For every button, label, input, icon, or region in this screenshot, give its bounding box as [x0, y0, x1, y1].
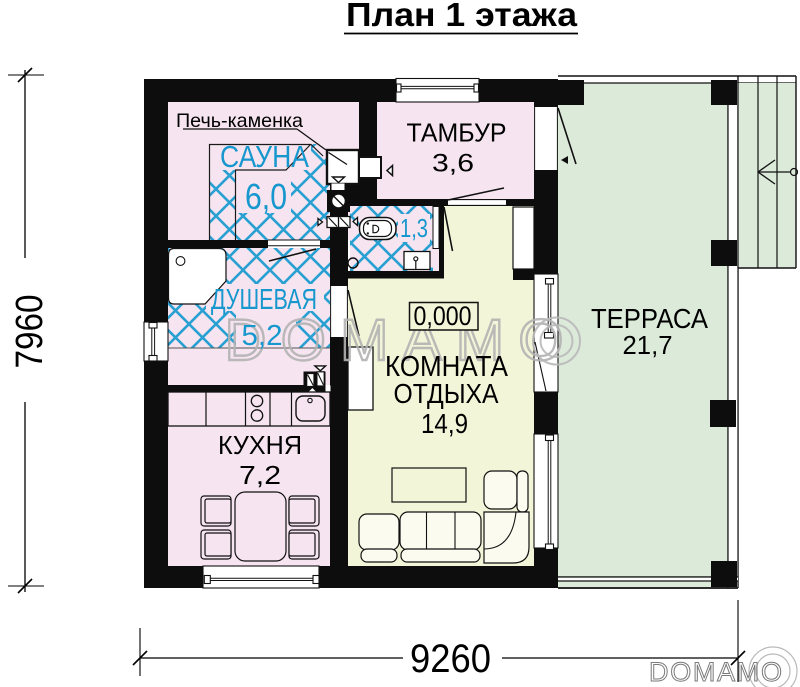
svg-text:0,000: 0,000	[414, 301, 472, 331]
svg-text:1,3: 1,3	[400, 213, 428, 243]
svg-text:6,0: 6,0	[245, 176, 287, 217]
svg-text:14,9: 14,9	[421, 408, 468, 439]
svg-text:ДУШЕВАЯ: ДУШЕВАЯ	[211, 284, 317, 316]
svg-text:ОТДЫХА: ОТДЫХА	[394, 378, 499, 409]
svg-text:ТАМБУР: ТАМБУР	[407, 120, 507, 148]
svg-text:САУНА: САУНА	[220, 139, 309, 174]
svg-text:3,6: 3,6	[432, 150, 474, 178]
svg-text:21,7: 21,7	[623, 330, 673, 360]
svg-text:План 1 этажа: План 1 этажа	[346, 0, 578, 33]
svg-text:7,2: 7,2	[239, 460, 281, 490]
svg-text:5,2: 5,2	[242, 320, 283, 352]
svg-text:7960: 7960	[9, 295, 51, 369]
svg-text:9260: 9260	[410, 637, 491, 681]
svg-text:КУХНЯ: КУХНЯ	[218, 430, 302, 460]
